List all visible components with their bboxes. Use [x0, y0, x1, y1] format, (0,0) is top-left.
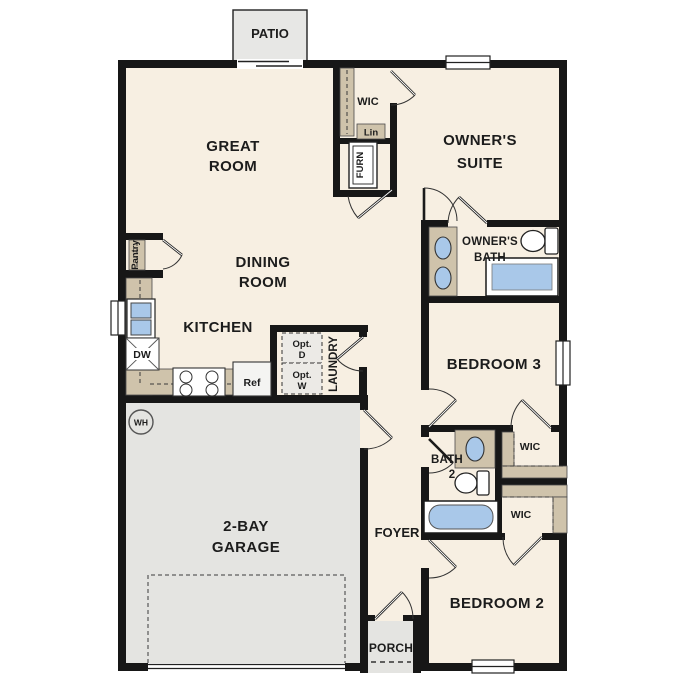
pantry-label: Pantry [130, 240, 141, 270]
kitchen-label: KITCHEN [183, 319, 252, 336]
dishwasher-label: DW [133, 349, 151, 361]
laundry-label: LAUNDRY [328, 336, 340, 392]
opt-washer-label-2: W [298, 381, 307, 392]
opt-washer-label-1: Opt. [293, 370, 312, 381]
owners-bath-sink-2 [435, 267, 451, 289]
owners-suite-label-1: OWNER'S [443, 132, 517, 149]
slider-gap [237, 59, 303, 69]
patio-sliding-door [237, 59, 303, 69]
great-room-label-2: ROOM [209, 158, 257, 175]
opt-dryer-label-2: D [299, 350, 306, 361]
bath-2-toilet-bowl [455, 473, 477, 493]
owners-bath-label-1: OWNER'S [462, 236, 518, 248]
range [173, 368, 225, 396]
porch-label: PORCH [369, 641, 413, 655]
wic-3-shelf-bottom [502, 466, 567, 478]
opt-dryer-label-1: Opt. [293, 339, 312, 350]
floor-plan: DW Ref Opt. D Opt. W LAUNDRY FURN [0, 0, 687, 687]
bedroom-2-label: BEDROOM 2 [450, 595, 544, 612]
dining-room-label-2: ROOM [239, 274, 287, 291]
owners-suite-label-2: SUITE [457, 155, 503, 172]
water-heater: WH [129, 410, 153, 434]
kitchen-sink-bowl-1 [131, 303, 151, 318]
bath-2-sink [466, 437, 484, 461]
bath-2-label-1: BATH [431, 454, 463, 466]
wic-bedroom-2-label: WIC [511, 509, 532, 521]
furnace: FURN [349, 142, 377, 188]
wic-2-shelf-top [502, 485, 567, 497]
wic-bedroom-3-label: WIC [520, 441, 541, 453]
laundry-room: Opt. D Opt. W LAUNDRY [282, 333, 340, 394]
wic-3-shelf-left [502, 432, 514, 466]
refrigerator-label: Ref [244, 377, 261, 389]
wic-2-shelf-right [553, 497, 567, 533]
water-heater-label: WH [134, 418, 148, 428]
owners-bath-toilet-tank [545, 228, 558, 254]
kitchen-sink-bowl-2 [131, 320, 151, 335]
refrigerator: Ref [233, 362, 271, 396]
floor-plan-canvas: DW Ref Opt. D Opt. W LAUNDRY FURN [0, 0, 687, 687]
bath-2-label-2: 2 [449, 469, 456, 481]
bedroom-3-label: BEDROOM 3 [447, 356, 541, 373]
furnace-label: FURN [355, 152, 366, 179]
dining-room-label-1: DINING [236, 254, 291, 271]
garage-label-2: GARAGE [212, 539, 280, 556]
owners-wic-label: WIC [357, 96, 378, 108]
garage-door-opening [148, 663, 345, 671]
lin-label: Lin [364, 128, 378, 139]
bath-2-tub-basin [429, 505, 493, 529]
owners-shower-basin [492, 264, 552, 290]
dishwasher: DW [126, 338, 159, 370]
patio-label: PATIO [251, 26, 289, 41]
great-room-label-1: GREAT [206, 138, 259, 155]
owners-bath-sink-1 [435, 237, 451, 259]
owners-bath-toilet-bowl [521, 231, 545, 252]
garage-label-1: 2-BAY [223, 518, 269, 535]
bath-2-toilet-tank [477, 471, 489, 495]
owners-bath-label-2: BATH [474, 252, 506, 264]
foyer-label: FOYER [375, 525, 420, 540]
